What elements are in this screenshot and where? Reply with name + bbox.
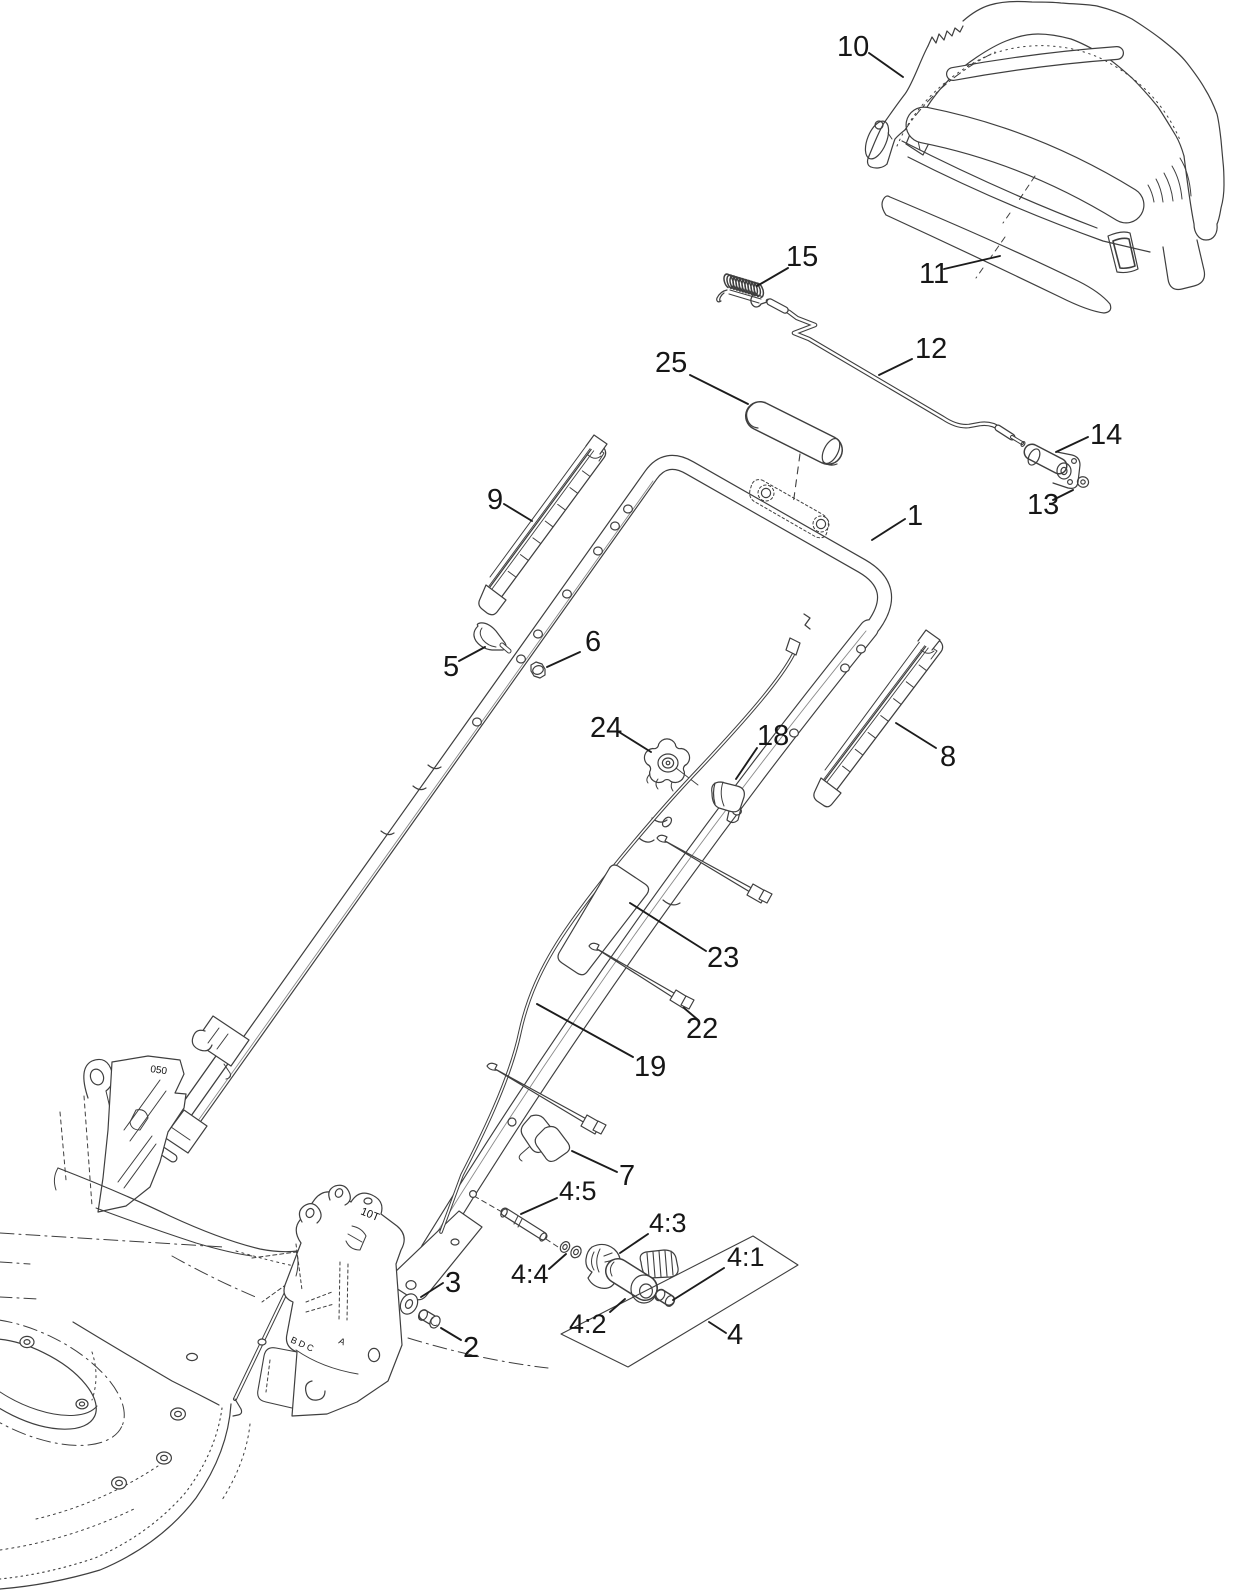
svg-text:8: 8 — [940, 741, 956, 773]
svg-text:4: 4 — [727, 1319, 743, 1351]
svg-text:11: 11 — [919, 258, 949, 290]
svg-text:14: 14 — [1090, 419, 1122, 451]
svg-text:1: 1 — [907, 500, 923, 532]
svg-text:25: 25 — [655, 347, 687, 379]
svg-text:22: 22 — [686, 1013, 718, 1045]
svg-text:10: 10 — [837, 31, 869, 63]
svg-text:2: 2 — [463, 1332, 479, 1364]
svg-text:6: 6 — [585, 626, 601, 658]
svg-text:5: 5 — [443, 651, 459, 683]
svg-text:9: 9 — [487, 484, 503, 516]
svg-text:24: 24 — [590, 712, 622, 744]
svg-text:4:5: 4:5 — [559, 1176, 597, 1206]
svg-text:13: 13 — [1027, 489, 1059, 521]
svg-text:19: 19 — [634, 1051, 666, 1083]
svg-text:4:3: 4:3 — [649, 1208, 687, 1238]
svg-text:3: 3 — [445, 1267, 461, 1299]
svg-text:4:1: 4:1 — [727, 1242, 765, 1272]
svg-text:15: 15 — [786, 241, 818, 273]
svg-text:7: 7 — [619, 1160, 635, 1192]
svg-text:4:2: 4:2 — [569, 1309, 607, 1339]
svg-text:12: 12 — [915, 333, 947, 365]
svg-text:18: 18 — [757, 720, 789, 752]
svg-text:4:4: 4:4 — [511, 1259, 549, 1289]
svg-text:23: 23 — [707, 942, 739, 974]
